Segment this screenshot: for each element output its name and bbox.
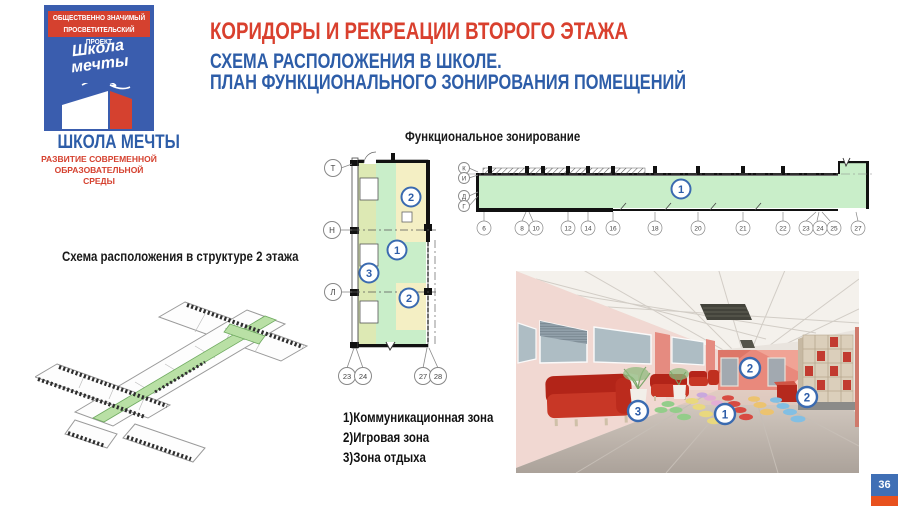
svg-text:К: К	[462, 167, 466, 173]
vertical-floor-plan: Т Н Л 23 24 27 28	[318, 148, 454, 398]
functional-zoning-title: Функциональное зонирование	[405, 129, 580, 144]
svg-text:2: 2	[406, 293, 412, 305]
svg-text:6: 6	[482, 226, 486, 233]
svg-text:1: 1	[394, 245, 400, 257]
svg-text:Т: Т	[331, 164, 336, 173]
svg-text:Л: Л	[330, 288, 335, 297]
svg-text:16: 16	[609, 226, 617, 233]
zone-marker: 1	[672, 180, 691, 199]
svg-text:8: 8	[520, 226, 524, 233]
sofa	[689, 370, 719, 386]
svg-text:1: 1	[678, 184, 684, 196]
page-title: КОРИДОРЫ И РЕКРЕАЦИИ ВТОРОГО ЭТАЖА	[210, 18, 628, 46]
logo-name: ШКОЛА МЕЧТЫ	[44, 132, 154, 154]
svg-text:18: 18	[651, 226, 659, 233]
door	[721, 358, 738, 386]
school-building-icon	[44, 83, 154, 131]
logo-banner-line1: ОБЩЕСТВЕННО ЗНАЧИМЫЙ	[52, 13, 146, 25]
svg-text:24: 24	[816, 226, 824, 233]
svg-text:28: 28	[434, 372, 442, 381]
logo-tagline: РАЗВИТИЕ СОВРЕМЕННОЙ ОБРАЗОВАТЕЛЬНОЙ СРЕ…	[40, 154, 158, 187]
page-subtitle-line2: ПЛАН ФУНКЦИОНАЛЬНОГО ЗОНИРОВАНИЯ ПОМЕЩЕН…	[210, 71, 686, 95]
svg-text:И: И	[462, 177, 466, 183]
svg-text:27: 27	[854, 226, 862, 233]
legend-item-3: 3)Зона отдыха	[343, 448, 493, 468]
page-number: 36	[871, 474, 898, 496]
svg-text:Д: Д	[462, 195, 466, 201]
legend-item-1: 1)Коммуникационная зона	[343, 408, 493, 428]
svg-text:3: 3	[366, 268, 372, 280]
axis-bubbles-bottom: 6 8 10 12 14 16 18 20 21 22 23 24 25 27	[477, 212, 865, 235]
axis-bubble-N: Н	[324, 222, 353, 239]
slide: ОБЩЕСТВЕННО ЗНАЧИМЫЙ ПРОСВЕТИТЕЛЬСКИЙ ПР…	[0, 0, 900, 506]
svg-text:20: 20	[694, 226, 702, 233]
svg-text:Н: Н	[329, 226, 335, 235]
svg-text:23: 23	[343, 372, 351, 381]
svg-text:22: 22	[779, 226, 787, 233]
svg-text:2: 2	[804, 393, 810, 405]
svg-text:1: 1	[722, 410, 729, 422]
svg-text:12: 12	[564, 226, 572, 233]
svg-text:10: 10	[532, 226, 540, 233]
svg-text:2: 2	[408, 192, 414, 204]
door	[360, 301, 378, 323]
svg-text:24: 24	[359, 372, 367, 381]
logo-banner: ОБЩЕСТВЕННО ЗНАЧИМЫЙ ПРОСВЕТИТЕЛЬСКИЙ ПР…	[48, 11, 150, 37]
axis-bubble-L: Л	[325, 284, 353, 301]
svg-text:23: 23	[802, 226, 810, 233]
legend-item-2: 2)Игровая зона	[343, 428, 493, 448]
corridor-photo: 3 1 2 2	[516, 271, 859, 473]
axis-bubbles-bottom: 23 24 27 28	[339, 348, 447, 385]
horizontal-floor-plan: К И Д Г 1 6 8 10 12 14 16 1	[455, 152, 900, 240]
svg-text:27: 27	[419, 372, 427, 381]
logo-block: ОБЩЕСТВЕННО ЗНАЧИМЫЙ ПРОСВЕТИТЕЛЬСКИЙ ПР…	[44, 5, 154, 131]
svg-text:14: 14	[584, 226, 592, 233]
page-number-badge: 36	[871, 474, 898, 506]
axis-bubble-T: Т	[325, 160, 353, 177]
badge-red-block	[871, 496, 898, 506]
svg-text:21: 21	[739, 226, 747, 233]
svg-text:3: 3	[635, 407, 641, 419]
axis-bubbles-left: К И Д Г	[459, 163, 479, 212]
svg-text:2: 2	[747, 364, 753, 376]
svg-text:25: 25	[830, 226, 838, 233]
structure-scheme-title: Схема расположения в структуре 2 этажа	[62, 249, 299, 264]
door	[360, 178, 378, 200]
zone-legend: 1)Коммуникационная зона 2)Игровая зона 3…	[343, 408, 520, 468]
isometric-scheme	[35, 272, 315, 472]
